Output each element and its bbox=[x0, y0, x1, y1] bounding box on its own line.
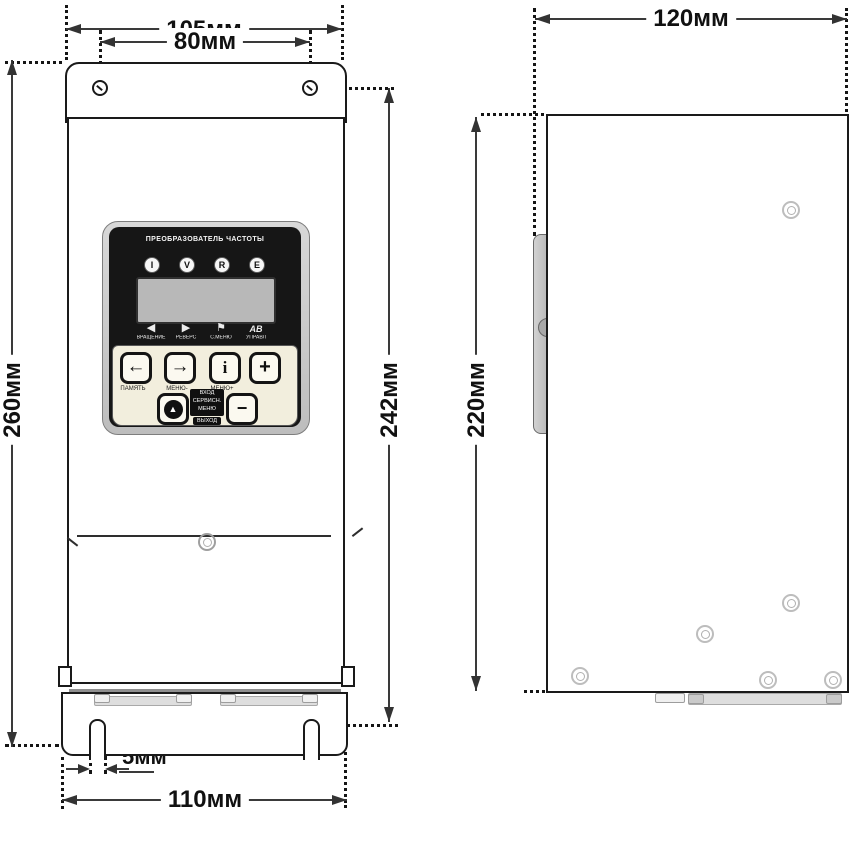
status-label: УПРАВЛ bbox=[236, 335, 275, 340]
side-terminal-tab bbox=[688, 694, 704, 704]
info-line: МЕНЮ bbox=[190, 406, 224, 414]
terminal-clip bbox=[94, 694, 110, 703]
arrow-up-icon bbox=[7, 60, 17, 75]
led-indicator: E bbox=[249, 257, 265, 273]
led-indicator: I bbox=[144, 257, 160, 273]
arrow-up-icon bbox=[471, 117, 481, 132]
info-icon: i bbox=[223, 358, 228, 378]
arrow-down-icon bbox=[7, 732, 17, 747]
led-indicator: V bbox=[179, 257, 195, 273]
service-menu-icon: ⚑ bbox=[208, 322, 234, 334]
side-terminal-tab bbox=[826, 694, 842, 704]
terminal-clip bbox=[176, 694, 192, 703]
arrow-right-icon bbox=[832, 14, 847, 24]
info-block: ВХОД СЕРВИСН. МЕНЮ bbox=[190, 389, 224, 416]
info-line: СЕРВИСН. bbox=[190, 398, 224, 406]
dim-label-110: 110мм bbox=[161, 786, 249, 814]
right-arrow-icon: → bbox=[171, 356, 190, 378]
lcd-display bbox=[136, 277, 276, 324]
arrow-left-icon bbox=[105, 764, 117, 774]
dim-label-220: 220мм bbox=[463, 355, 491, 445]
keypad: ← → i + ПАМЯТЬ МЕНЮ- МЕНЮ+ ▲ ВХОД СЕРВИС… bbox=[112, 345, 298, 426]
screw-icon bbox=[824, 671, 842, 689]
mounting-slot-right bbox=[303, 719, 320, 760]
screw-icon bbox=[759, 671, 777, 689]
arrow-up-icon bbox=[384, 88, 394, 103]
key-label: ПАМЯТЬ bbox=[111, 386, 155, 392]
mounting-hole-icon bbox=[302, 80, 318, 96]
dim-label-260: 260мм bbox=[0, 355, 27, 445]
arrow-right-icon bbox=[332, 795, 347, 805]
cover-screw-icon bbox=[198, 533, 216, 551]
arrow-left-icon bbox=[62, 795, 77, 805]
control-panel-bezel: ПРЕОБРАЗОВАТЕЛЬ ЧАСТОТЫ I V R E ◀ ▶ ⚑ АВ… bbox=[109, 227, 301, 427]
up-triangle-icon: ▲ bbox=[164, 400, 183, 419]
screw-icon bbox=[571, 667, 589, 685]
screw-icon bbox=[782, 201, 800, 219]
side-terminal-tab bbox=[655, 693, 685, 703]
arrow-down-icon bbox=[471, 676, 481, 691]
info-line: ВХОД bbox=[190, 390, 224, 398]
dim-label-120: 120мм bbox=[646, 5, 736, 33]
led-indicator: R bbox=[214, 257, 230, 273]
arrow-right-icon bbox=[327, 24, 342, 34]
dim-label-80: 80мм bbox=[167, 28, 243, 56]
arrow-down-icon bbox=[384, 707, 394, 722]
arrow-left-icon bbox=[100, 37, 115, 47]
plus-button[interactable]: + bbox=[249, 352, 281, 384]
rotation-direction-icon: ◀ bbox=[138, 322, 164, 334]
menu-minus-button[interactable]: → bbox=[164, 352, 196, 384]
exit-label: ВЫХОД bbox=[193, 417, 221, 425]
terminal-clip bbox=[302, 694, 318, 703]
status-label: С.МЕНЮ bbox=[201, 335, 240, 340]
arrow-right-icon bbox=[295, 37, 310, 47]
body-tab-left bbox=[58, 666, 72, 687]
memory-button[interactable]: ← bbox=[120, 352, 152, 384]
reverse-direction-icon: ▶ bbox=[173, 322, 199, 334]
body-tab-right bbox=[341, 666, 355, 687]
side-terminal-rail bbox=[688, 693, 842, 705]
minus-button[interactable]: − bbox=[226, 393, 258, 425]
screw-icon bbox=[782, 594, 800, 612]
arrow-left-icon bbox=[535, 14, 550, 24]
menu-plus-button[interactable]: i bbox=[209, 352, 241, 384]
dim-label-242: 242мм bbox=[376, 355, 404, 445]
left-arrow-icon: ← bbox=[127, 356, 146, 378]
minus-icon: − bbox=[237, 398, 248, 419]
screw-icon bbox=[696, 625, 714, 643]
status-label: ВРАЩЕНИЕ bbox=[131, 335, 170, 340]
arrow-right-icon bbox=[78, 764, 90, 774]
terminal-clip bbox=[220, 694, 236, 703]
up-button[interactable]: ▲ bbox=[157, 393, 189, 425]
mounting-hole-icon bbox=[92, 80, 108, 96]
arrow-left-icon bbox=[66, 24, 81, 34]
control-mode-icon: АВ bbox=[243, 323, 269, 335]
side-body bbox=[546, 114, 849, 693]
status-label: РЕВЕРС bbox=[166, 335, 205, 340]
mounting-slot-left bbox=[89, 719, 106, 760]
panel-title: ПРЕОБРАЗОВАТЕЛЬ ЧАСТОТЫ bbox=[109, 236, 301, 243]
plus-icon: + bbox=[259, 356, 271, 379]
